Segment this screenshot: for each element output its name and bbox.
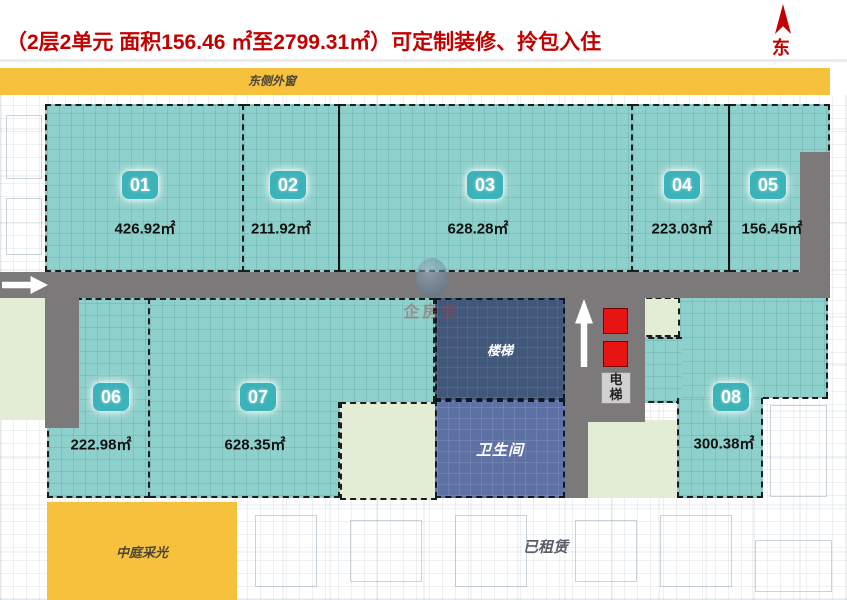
unit-03-area: 628.28㎡ <box>448 218 509 239</box>
corridor-left-strip <box>45 298 79 428</box>
background-furniture <box>6 115 42 179</box>
unit-07-badge: 07 <box>240 383 276 411</box>
watermark-text: 企房房 <box>396 298 468 322</box>
background-furniture <box>255 515 317 587</box>
background-furniture <box>350 520 422 582</box>
atrium-label: 中庭采光 <box>116 542 168 561</box>
unit-04-badge: 04 <box>664 171 700 199</box>
green-zone-left <box>0 298 45 420</box>
leased-label: 已租赁 <box>523 536 568 557</box>
east-window-banner: 东侧外窗 <box>0 68 830 95</box>
floorplan-page: （2层2单元 面积156.46 ㎡至2799.31㎡）可定制装修、拎包入住 东 … <box>0 0 847 600</box>
background-furniture <box>755 540 832 592</box>
unit-06-badge: 06 <box>93 383 129 411</box>
unit-05-area: 156.45㎡ <box>742 218 803 239</box>
compass-label: 东 <box>772 34 790 60</box>
unit-02-area: 211.92㎡ <box>251 218 311 239</box>
unit-04-area: 223.03㎡ <box>652 218 713 239</box>
unit-08-region-arm <box>639 337 682 403</box>
unit-02-badge: 02 <box>270 171 306 199</box>
unit-08-area: 300.38㎡ <box>694 433 755 454</box>
unit-03-badge: 03 <box>467 171 503 199</box>
watermark: 企房房 <box>396 258 468 334</box>
stairs-label: 楼梯 <box>487 340 513 359</box>
background-furniture <box>660 515 732 587</box>
unit-07-area: 628.35㎡ <box>225 434 286 455</box>
elevator-shaft-marker <box>603 308 628 334</box>
background-furniture <box>455 515 527 587</box>
watermark-logo-icon <box>416 258 448 298</box>
elevator-label: 电梯 <box>609 373 624 402</box>
toilet-label: 卫生间 <box>476 439 524 460</box>
corridor-right-strip <box>800 152 830 273</box>
corridor-core-stem <box>565 422 588 498</box>
east-window-banner-label: 东侧外窗 <box>248 68 296 95</box>
toilet-block: 卫生间 <box>435 400 565 498</box>
elevator-shaft-marker <box>603 341 628 367</box>
background-furniture <box>770 405 827 497</box>
green-zone-mid <box>340 402 437 500</box>
unit-01-area: 426.92㎡ <box>115 218 176 239</box>
unit-08-boundary <box>763 397 828 399</box>
compass-north-arrow-icon <box>773 4 793 34</box>
divider <box>0 59 847 62</box>
unit-08-badge: 08 <box>713 383 749 411</box>
unit-01-badge: 01 <box>122 171 158 199</box>
unit-08-region <box>680 295 828 398</box>
background-furniture <box>575 520 637 582</box>
elevator-box: 电梯 <box>601 372 631 404</box>
background-furniture <box>6 198 42 255</box>
green-zone-below-elevator <box>588 420 677 498</box>
unit-06-area: 222.98㎡ <box>71 434 132 455</box>
unit-07-region <box>150 298 435 402</box>
unit-05-badge: 05 <box>750 171 786 199</box>
page-title: （2层2单元 面积156.46 ㎡至2799.31㎡）可定制装修、拎包入住 <box>6 26 601 56</box>
atrium-zone: 中庭采光 <box>47 502 237 600</box>
